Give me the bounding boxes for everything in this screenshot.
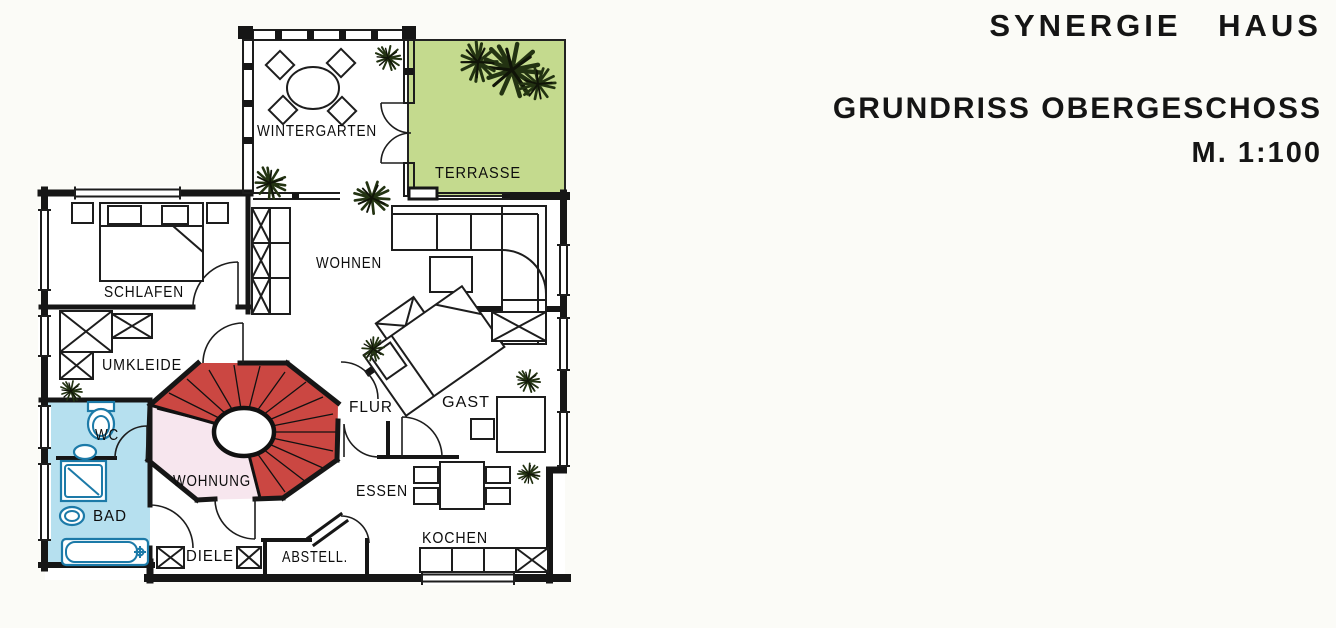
stair-well [214,408,274,456]
window [38,464,51,540]
washbasin [60,507,84,525]
window [38,406,51,448]
room-label-gast: GAST [442,394,490,411]
floor-plan-svg: WINTERGARTEN TERRASSE WOHNEN SCHLAFEN UM… [0,0,620,628]
window [557,412,570,466]
room-label-diele: DIELE [186,548,234,565]
chair [414,488,438,504]
scanned-floor-plan-page: SYNERGIE HAUS GRUNDRISS OBERGESCHOSS M. … [0,0,1336,628]
bathtub [62,539,148,565]
project-title: SYNERGIE HAUS [833,8,1322,44]
room-label-umkleide: UMKLEIDE [102,357,182,374]
room-label-kochen: KOCHEN [422,530,488,547]
wardrobe [60,311,112,352]
wardrobe [112,314,152,338]
room-label-wintergarten: WINTERGARTEN [257,123,377,140]
room-label-essen: ESSEN [356,483,408,500]
window [38,210,51,290]
room-label-bad: BAD [93,508,127,525]
title-block: SYNERGIE HAUS GRUNDRISS OBERGESCHOSS M. … [833,8,1322,170]
window [75,187,180,200]
desk [497,397,545,452]
drawing-scale: M. 1:100 [833,137,1322,170]
window [557,245,570,295]
room-label-wohnen: WOHNEN [316,255,382,272]
room-label-wohnung: WOHNUNG [173,473,251,490]
chair [486,467,510,483]
room-label-schlafen: SCHLAFEN [104,284,184,301]
cabinet [157,547,184,568]
coffee-table [430,257,472,292]
drawing-title: GRUNDRISS OBERGESCHOSS [833,92,1322,126]
chair [471,419,494,439]
room-label-terrasse: TERRASSE [435,165,521,182]
dining-table [440,462,484,509]
wardrobe [492,312,546,341]
wardrobe [60,352,93,379]
shower [61,461,106,501]
hand-basin [74,445,96,459]
cabinet [237,547,261,568]
window [557,318,570,370]
chair [486,488,510,504]
nightstand [207,203,228,223]
room-label-abstell: ABSTELL. [282,549,348,566]
chair [414,467,438,483]
terrace-step [409,188,437,199]
window [422,571,514,585]
room-label-flur: FLUR [349,399,393,416]
kitchen-counter [420,548,548,572]
window [38,316,51,356]
double-bed [100,203,203,281]
room-label-wc: WC [95,427,119,444]
wardrobe [252,208,290,314]
nightstand [72,203,93,223]
